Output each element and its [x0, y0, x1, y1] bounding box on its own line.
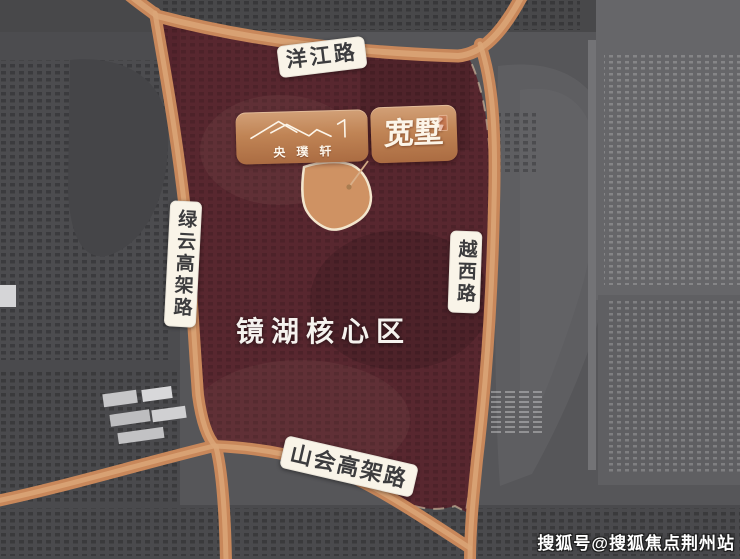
plot-pointer-dot [346, 184, 351, 189]
mountain-logo-icon [246, 113, 357, 142]
road-label-lvyun-viaduct: 绿云高架路 [164, 200, 202, 327]
area-title: 镜湖核心区 [236, 310, 411, 350]
brand-banner: 央璞轩 [235, 109, 368, 164]
road-label-yuexi: 越西路 [448, 230, 483, 313]
product-banner: 宽墅 [370, 105, 458, 164]
watermark: 搜狐号@搜狐焦点荆州站 [537, 529, 735, 554]
seal-mark-icon [438, 115, 448, 131]
satellite-map: 央璞轩 宽墅 洋江路 绿云高架路 越西路 山会高架路 镜湖核心区 搜狐号@搜狐焦… [0, 0, 740, 559]
brand-name: 央璞轩 [262, 141, 342, 160]
product-name: 宽墅 [383, 118, 444, 150]
